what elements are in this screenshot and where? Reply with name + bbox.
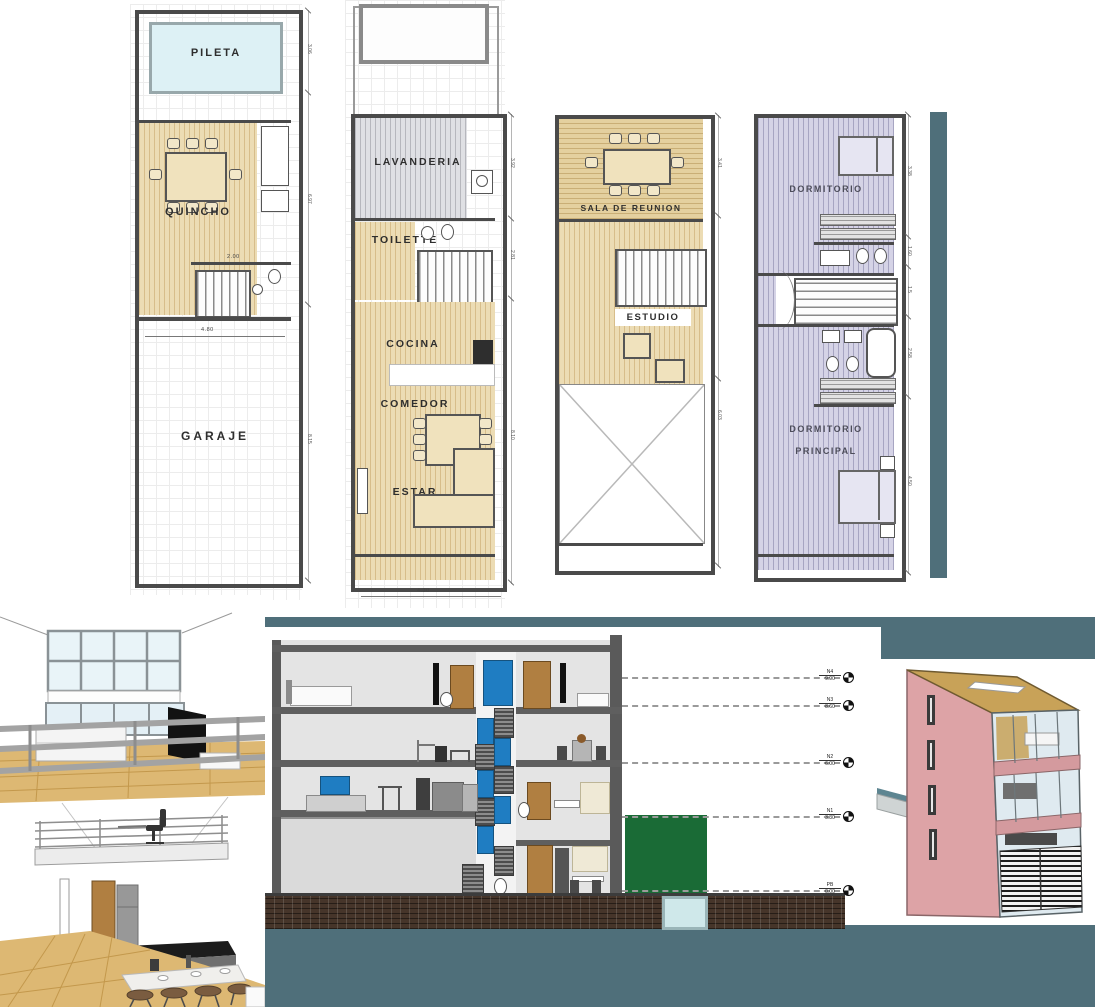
- chair-icon: [413, 434, 426, 445]
- plan3-stairs: [615, 249, 707, 307]
- section-bed: [290, 686, 352, 706]
- balcony-floor: [355, 557, 495, 580]
- datum-marker-icon: [843, 757, 854, 768]
- plan3-outline: SALA DE REUNION ESTUDIO: [555, 115, 715, 575]
- chair: [592, 880, 601, 893]
- level-line: [622, 816, 840, 818]
- chair-icon: [479, 418, 492, 429]
- estudio-label: ESTUDIO: [615, 312, 691, 323]
- wardrobe-slit: [433, 663, 439, 705]
- chair-icon: [413, 418, 426, 429]
- plan2-outline: LAVANDERIA TOILETTE COCINA COMEDOR ESTAR: [351, 114, 507, 592]
- wardrobe: [820, 228, 896, 240]
- teal-strip-vertical: [930, 112, 947, 578]
- chair-icon: [671, 157, 684, 168]
- bath-wall: [191, 262, 291, 265]
- nightstand: [880, 456, 895, 470]
- tall-cabinet: [555, 848, 569, 893]
- bidet-icon: [874, 248, 887, 264]
- level-elev: 9.90: [825, 676, 835, 682]
- wall: [355, 218, 495, 221]
- chair: [557, 746, 567, 760]
- wall: [814, 404, 894, 407]
- pool-in-section: [662, 896, 708, 930]
- datum-marker-icon: [843, 700, 854, 711]
- pool-pileta: PILETA: [149, 22, 283, 94]
- building-section: N4 9.90 N3 8.60 N2 6.00 N1 3.30 PB 0.00: [265, 608, 885, 938]
- side-dim: 3.92: [509, 158, 515, 168]
- chair-icon: [585, 157, 598, 168]
- balcony-slab: [758, 554, 894, 557]
- interior-wood-wall: [996, 716, 1029, 760]
- plan2-width-dim: 4.30: [417, 588, 430, 594]
- principal-label-2: PRINCIPAL: [758, 446, 894, 456]
- plan4-stairs: [794, 278, 898, 326]
- stair-flight: [475, 744, 495, 770]
- railing-bar: [417, 744, 435, 746]
- level-elev: 3.30: [825, 815, 835, 821]
- door-swing: [760, 270, 795, 330]
- interior-furniture: [1005, 833, 1057, 845]
- dim-line: [145, 336, 285, 337]
- wall: [758, 324, 894, 327]
- desk: [655, 359, 685, 383]
- toilet-icon: [441, 224, 454, 240]
- void-x-marks: [560, 385, 704, 543]
- chair-icon: [647, 185, 660, 196]
- exterior-render-svg: [875, 655, 1095, 925]
- floor-plan-first: LAVANDERIA TOILETTE COCINA COMEDOR ESTAR: [345, 0, 545, 614]
- toilet-icon: [856, 248, 869, 264]
- chair-icon: [479, 434, 492, 445]
- chair: [596, 746, 606, 760]
- chair-icon: [609, 185, 622, 196]
- level-label: N4 9.90: [819, 669, 841, 682]
- kitchen-unit: [432, 782, 464, 812]
- toilet-icon: [826, 356, 839, 372]
- stair-flight: [462, 864, 484, 895]
- garaje-label: GARAJE: [139, 429, 291, 443]
- floor-plan-second: SALA DE REUNION ESTUDIO 3.41 6.03: [550, 110, 740, 575]
- counter-end: [246, 987, 265, 1007]
- stair-flight: [494, 708, 514, 738]
- estudio-labelbox: ESTUDIO: [615, 309, 691, 326]
- core-window: [477, 770, 494, 798]
- level-name: N4: [819, 669, 841, 676]
- side-dim: 3.41: [716, 158, 722, 168]
- side-dim: 6.97: [306, 194, 312, 204]
- sink-counter: [554, 800, 580, 808]
- garage-volume: [281, 817, 483, 895]
- sofa: [413, 494, 495, 528]
- kitchen-counter: [389, 364, 495, 386]
- cocina-label: COCINA: [361, 338, 465, 350]
- sink-icon: [252, 284, 263, 295]
- side-dim: 4.50: [906, 476, 912, 486]
- floor-slab-2: [272, 760, 622, 767]
- level-label: PB 0.00: [819, 882, 841, 895]
- kettle: [150, 959, 159, 971]
- lavanderia-label: LAVANDERIA: [355, 156, 481, 168]
- chair-icon: [205, 138, 218, 149]
- section-door: [527, 845, 553, 895]
- floor-slab-3: [272, 707, 622, 714]
- interior-furniture: [1003, 783, 1037, 799]
- table-leg: [398, 788, 400, 810]
- kitchen-unit: [416, 778, 430, 810]
- meeting-table: [603, 149, 671, 185]
- desk: [623, 333, 651, 359]
- sink-icon: [844, 330, 862, 343]
- chair: [570, 880, 579, 893]
- level-elev: 0.00: [825, 889, 835, 895]
- vanity-icon: [820, 250, 850, 266]
- green-wall: [625, 815, 707, 893]
- level-label: N3 8.60: [819, 697, 841, 710]
- stair-flight: [475, 798, 495, 826]
- chair-icon: [628, 133, 641, 144]
- core-window: [494, 738, 511, 766]
- side-dim: 8.15: [306, 434, 312, 444]
- side-dim: 6.03: [716, 410, 722, 420]
- level-name: N2: [819, 754, 841, 761]
- principal-label-1: DORMITORIO: [758, 424, 894, 434]
- floor-plan-third: DORMITORIO DORMITORIO PRINCIPAL: [748, 108, 953, 583]
- pileta-label: PILETA: [152, 47, 280, 59]
- counter: [261, 126, 289, 186]
- core-window: [477, 718, 494, 746]
- side-dim: 1.60: [906, 246, 912, 256]
- level-name: N1: [819, 808, 841, 815]
- chair-icon: [149, 169, 162, 180]
- desk-top: [450, 750, 470, 752]
- desk-leg: [450, 752, 452, 762]
- counter: [261, 190, 289, 212]
- sink-icon: [822, 330, 840, 343]
- level-name: N3: [819, 697, 841, 704]
- interior-render-svg: [0, 595, 265, 1007]
- bed-headboard: [286, 680, 292, 704]
- exterior-render: [875, 655, 1095, 925]
- skylight: [359, 4, 489, 64]
- chair-icon: [229, 169, 242, 180]
- wardrobe: [820, 378, 896, 390]
- roof-slab: [272, 645, 622, 652]
- teal-block-right: [881, 617, 1095, 659]
- plan4-outline: DORMITORIO DORMITORIO PRINCIPAL: [754, 114, 906, 582]
- bidet-icon: [846, 356, 859, 372]
- office-chair: [146, 809, 166, 843]
- speckled-wall: [580, 782, 610, 814]
- bath-dim: 2.00: [227, 254, 240, 260]
- wardrobe: [820, 392, 896, 404]
- stove-icon: [473, 340, 493, 366]
- chair-icon: [628, 185, 641, 196]
- ground-brick: [265, 893, 845, 929]
- desk-leg: [468, 752, 470, 762]
- core-window: [477, 826, 494, 854]
- wardrobe-slit: [560, 663, 566, 703]
- chair-icon: [609, 133, 622, 144]
- section-door: [523, 661, 551, 709]
- sala-label: SALA DE REUNION: [559, 203, 703, 213]
- floor-plan-ground: PILETA QUINCHO 2.00: [130, 4, 335, 604]
- lavanderia-floor: [355, 118, 467, 218]
- section-bed: [577, 693, 609, 707]
- side-dim: 2.58: [906, 348, 912, 358]
- section-body: [272, 640, 622, 893]
- interior-bed: [1025, 733, 1059, 745]
- shelf: [357, 468, 368, 514]
- interior-render: [0, 595, 265, 1007]
- bathtub-icon: [866, 328, 896, 378]
- table-leg: [382, 788, 384, 810]
- washer-drum-icon: [476, 175, 488, 187]
- level-line: [622, 705, 840, 707]
- side-dim: 2.81: [509, 250, 515, 260]
- stair-flight: [494, 846, 514, 876]
- side-dim: 3.06: [306, 44, 312, 54]
- balcony-slab: [559, 543, 703, 546]
- window-wall: [48, 631, 180, 691]
- datum-marker-icon: [843, 672, 854, 683]
- side-dim: 3.38: [906, 166, 912, 176]
- core-window: [483, 660, 513, 706]
- side-dim: 1.5: [906, 286, 912, 293]
- level-line: [622, 677, 840, 679]
- stair-flight: [494, 766, 514, 794]
- toilet-icon: [518, 802, 530, 818]
- garage-wall: [139, 317, 291, 321]
- tv-screen: [320, 776, 350, 795]
- plan1-stairs: [195, 270, 251, 318]
- level-label: N2 6.00: [819, 754, 841, 767]
- tv-cabinet: [306, 795, 366, 812]
- table: [572, 740, 592, 762]
- bottle: [186, 955, 191, 968]
- architectural-sheet: PILETA QUINCHO 2.00: [0, 0, 1095, 1007]
- plan2-ruler: [511, 114, 512, 584]
- plan1-outline: PILETA QUINCHO 2.00: [135, 10, 303, 588]
- level-line: [622, 890, 840, 892]
- bed-pillow-line: [876, 136, 878, 172]
- datum-marker-icon: [843, 885, 854, 896]
- double-height-void: [559, 384, 705, 544]
- wardrobe: [820, 214, 896, 226]
- plan3-ruler: [718, 115, 719, 567]
- bed-pillow-line: [878, 470, 880, 520]
- plan4-ruler: [908, 114, 909, 574]
- level-line: [622, 762, 840, 764]
- plan2-stairs: [417, 250, 493, 304]
- toilet-icon: [440, 692, 453, 707]
- side-dim: 8.10: [509, 430, 515, 440]
- plan1-ruler: [308, 10, 309, 582]
- quincho-table: [165, 152, 227, 202]
- level-elev: 8.60: [825, 704, 835, 710]
- chair-icon: [186, 138, 199, 149]
- wall: [814, 242, 894, 245]
- quincho-label: QUINCHO: [139, 206, 257, 218]
- fridge: [117, 885, 138, 947]
- dim-line: [361, 596, 501, 597]
- office-chair: [435, 746, 447, 762]
- level-name: PB: [819, 882, 841, 889]
- datum-marker-icon: [843, 811, 854, 822]
- core-window: [494, 796, 511, 824]
- level-label: N1 3.30: [819, 808, 841, 821]
- level-elev: 6.00: [825, 761, 835, 767]
- nightstand: [880, 524, 895, 538]
- sink-icon: [421, 226, 434, 240]
- kitchen-unit: [462, 784, 478, 812]
- person: [577, 734, 586, 743]
- section-door: [450, 665, 474, 709]
- toilette-label: TOILETTE: [355, 234, 455, 246]
- speckled-wall: [572, 846, 608, 872]
- comedor-label: COMEDOR: [355, 398, 475, 410]
- dormitorio-label: DORMITORIO: [758, 184, 894, 194]
- window-slit: [60, 879, 69, 935]
- section-door: [527, 782, 551, 820]
- toilet-icon: [268, 269, 281, 284]
- garage-width-dim: 4.80: [201, 327, 214, 333]
- chair-icon: [167, 138, 180, 149]
- bed-principal: [838, 470, 896, 524]
- chair-icon: [413, 450, 426, 461]
- bed: [838, 136, 894, 176]
- chair-icon: [647, 133, 660, 144]
